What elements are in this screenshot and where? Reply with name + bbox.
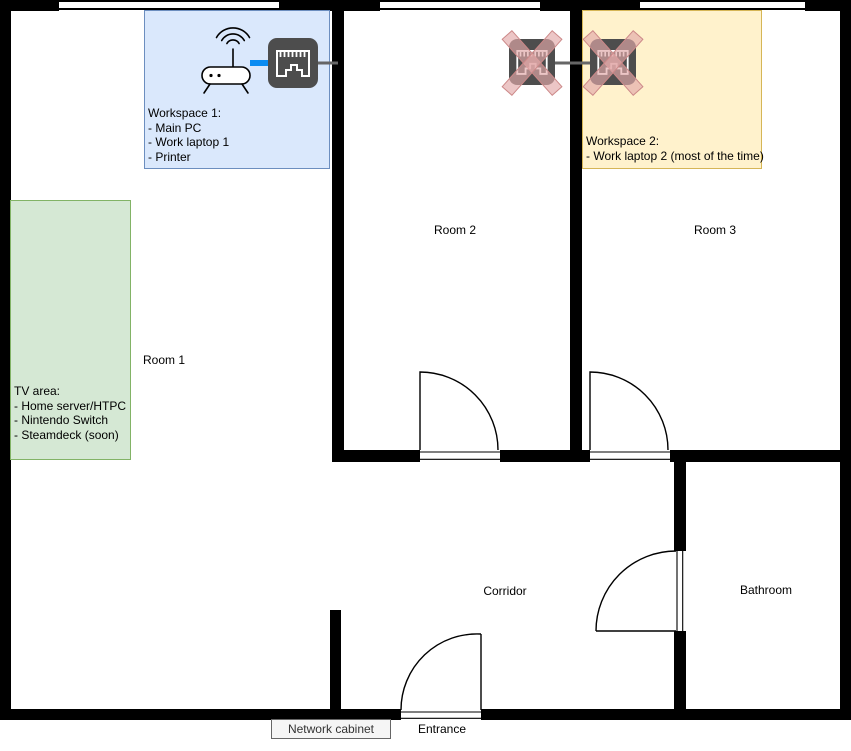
network-cabinet-label: Network cabinet bbox=[288, 722, 374, 736]
room1-label: Room 1 bbox=[143, 353, 185, 367]
room2-label: Room 2 bbox=[434, 223, 476, 237]
ethernet-port-crossed-out-icon bbox=[502, 31, 562, 96]
wall-room2-corridor bbox=[500, 450, 570, 462]
door-room3 bbox=[590, 372, 670, 460]
room3-label: Room 3 bbox=[694, 223, 736, 237]
workspace1-label: Workspace 1: - Main PC - Work laptop 1 -… bbox=[148, 106, 229, 164]
bathroom-label: Bathroom bbox=[740, 583, 792, 597]
text-line: - Printer bbox=[148, 150, 229, 165]
wall-room2-corridor bbox=[332, 450, 420, 462]
wall-room3-corridor bbox=[582, 450, 590, 462]
window bbox=[380, 0, 540, 10]
text-line: - Home server/HTPC bbox=[14, 399, 126, 414]
tv-area-label: TV area: - Home server/HTPC - Nintendo S… bbox=[14, 384, 126, 442]
wall-corridor-bathroom bbox=[674, 455, 686, 551]
wall-bottom-segment bbox=[481, 709, 851, 720]
text-line: - Work laptop 1 bbox=[148, 135, 229, 150]
floor-plan: Workspace 1: - Main PC - Work laptop 1 -… bbox=[0, 0, 851, 751]
text-line: - Main PC bbox=[148, 121, 229, 136]
door-entrance bbox=[401, 634, 481, 720]
wall-room2-room3 bbox=[570, 0, 582, 462]
workspace1-area: Workspace 1: - Main PC - Work laptop 1 -… bbox=[144, 10, 330, 169]
wall-entrance-left bbox=[330, 610, 341, 720]
tv-area: TV area: - Home server/HTPC - Nintendo S… bbox=[10, 200, 131, 460]
text-line: Workspace 2: bbox=[586, 134, 764, 149]
door-bathroom bbox=[596, 551, 685, 631]
wall-room3-bathroom-top bbox=[670, 450, 851, 462]
entrance-label: Entrance bbox=[418, 722, 466, 736]
workspace2-label: Workspace 2: - Work laptop 2 (most of th… bbox=[586, 134, 764, 163]
wall-room1-room2 bbox=[332, 0, 344, 462]
text-line: TV area: bbox=[14, 384, 126, 399]
network-cabinet: Network cabinet bbox=[271, 719, 391, 739]
text-line: - Steamdeck (soon) bbox=[14, 428, 126, 443]
window bbox=[640, 0, 805, 10]
text-line: - Nintendo Switch bbox=[14, 413, 126, 428]
workspace2-area: Workspace 2: - Work laptop 2 (most of th… bbox=[582, 10, 762, 169]
text-line: Workspace 1: bbox=[148, 106, 229, 121]
window bbox=[59, 0, 279, 10]
corridor-label: Corridor bbox=[483, 584, 526, 598]
door-room2 bbox=[420, 372, 500, 460]
wall-right bbox=[840, 0, 851, 720]
wall-corridor-bathroom bbox=[674, 631, 686, 709]
text-line: - Work laptop 2 (most of the time) bbox=[586, 149, 764, 164]
